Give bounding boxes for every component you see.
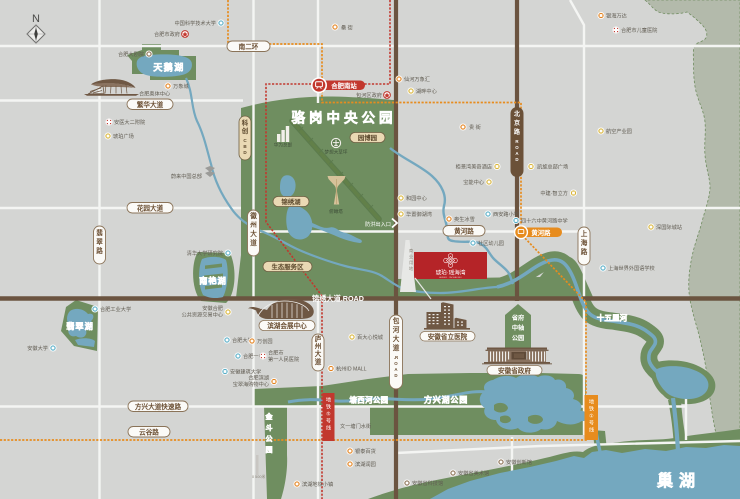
svg-text:地铁⑤号线: 地铁⑤号线 [326,396,331,432]
svg-text:上海世界外国语学校: 上海世界外国语学校 [608,264,655,272]
svg-text:合肥大剧院: 合肥大剧院 [118,50,145,58]
svg-text:合肥工业大学: 合肥工业大学 [100,305,131,313]
svg-text:生态服务区: 生态服务区 [272,262,305,271]
svg-text:方兴大道快速路: 方兴大道快速路 [135,402,182,411]
svg-text:蔚来中国总部: 蔚来中国总部 [171,172,202,180]
svg-text:栢景湾美奇酒店: 栢景湾美奇酒店 [456,163,492,171]
svg-text:AMBER · YAOHAI BAY: AMBER · YAOHAI BAY [439,276,462,279]
svg-text:深国际城站: 深国际城站 [656,223,682,231]
svg-text:滨湖会展中心: 滨湖会展中心 [267,321,307,330]
svg-text:中建·智立方: 中建·智立方 [540,189,568,197]
svg-text:黄河路: 黄河路 [531,228,551,237]
svg-text:包河区政府: 包河区政府 [356,91,382,99]
svg-text:锦绣湖: 锦绣湖 [281,197,301,206]
svg-text:梦想大草坪: 梦想大草坪 [325,149,348,156]
svg-text:清华大学研究院: 清华大学研究院 [187,249,224,257]
svg-text:合肥南站: 合肥南站 [330,81,357,90]
svg-text:繁华大道: 繁华大道 [137,100,164,109]
svg-text:安徽大学: 安徽大学 [27,344,48,352]
svg-text:贵 街: 贵 街 [469,123,481,131]
svg-text:天鹅湖: 天鹅湖 [153,62,184,73]
svg-text:安徽省立医院: 安徽省立医院 [428,332,468,341]
svg-text:合肥市: 合肥市 [268,349,284,357]
svg-text:琥珀·瑶海湾: 琥珀·瑶海湾 [436,269,466,277]
svg-text:银泰百货: 银泰百货 [355,447,376,455]
svg-text:巢湖: 巢湖 [656,471,701,490]
svg-text:地铁①号线: 地铁①号线 [589,398,594,434]
svg-text:凯旋总部广场: 凯旋总部广场 [537,163,568,171]
svg-text:南二环: 南二环 [239,42,259,51]
svg-text:翡翠湖: 翡翠湖 [66,321,94,331]
svg-text:琥珀广场: 琥珀广场 [113,132,134,140]
svg-text:社区幼儿园: 社区幼儿园 [478,239,504,247]
svg-text:奥生冰雪: 奥生冰雪 [454,215,475,223]
svg-text:0 500米: 0 500米 [252,474,266,479]
svg-text:安徽建筑大学: 安徽建筑大学 [230,368,261,376]
svg-text:黄河路: 黄河路 [454,226,474,235]
svg-text:十五里河: 十五里河 [597,313,628,323]
svg-text:方兴湖公园: 方兴湖公园 [424,395,468,405]
svg-text:安徽合肥: 安徽合肥 [202,304,223,312]
svg-text:滨湖润园: 滨湖润园 [355,460,376,468]
svg-text:翡翠路: 翡翠路 [96,228,103,255]
svg-text:公共资源交易中心: 公共资源交易中心 [181,311,223,319]
svg-text:花园大道: 花园大道 [137,203,164,212]
svg-text:防洪出入口: 防洪出入口 [365,220,391,228]
svg-text:合肥市政府: 合肥市政府 [154,30,180,38]
svg-text:安徽省政府: 安徽省政府 [498,366,531,375]
svg-text:安徽创新馆: 安徽创新馆 [506,458,532,466]
svg-text:杭州ID MALL: 杭州ID MALL [336,365,367,373]
svg-text:仙河万象汇: 仙河万象汇 [404,75,430,83]
svg-text:锦绣大道.ROAD: 锦绣大道.ROAD [312,294,364,303]
svg-text:万创园: 万创园 [257,337,273,345]
svg-text:中国科学技术大学: 中国科学技术大学 [174,19,216,27]
svg-text:湖畔中心: 湖畔中心 [416,87,437,95]
svg-text:滨湖地铁小镇: 滨湖地铁小镇 [302,480,333,488]
svg-text:云谷路: 云谷路 [139,427,159,436]
svg-text:宝翠海购物中心: 宝翠海购物中心 [233,380,269,388]
svg-text:省府中轴公园: 省府中轴公园 [511,314,525,342]
svg-text:百大心悦城: 百大心悦城 [357,333,384,341]
svg-text:航空产业园: 航空产业园 [606,127,632,135]
svg-text:N: N [32,13,40,25]
svg-text:合肥奥体中心: 合肥奥体中心 [139,90,170,98]
svg-text:华置御湖湾: 华置御湖湾 [406,210,432,218]
svg-text:骆岗中央公园: 骆岗中央公园 [292,110,397,126]
svg-text:安医大二附院: 安医大二附院 [114,118,146,126]
svg-text:四十六中黄河路中学: 四十六中黄河路中学 [521,217,568,225]
svg-text:南艳湖: 南艳湖 [199,276,227,286]
svg-text:塘西河公园: 塘西河公园 [350,396,389,405]
svg-text:第一人民医院: 第一人民医院 [268,355,300,363]
svg-text:西安路小学: 西安路小学 [493,210,519,218]
svg-text:园博园: 园博园 [358,133,378,142]
svg-text:罍 街: 罍 街 [341,24,353,32]
svg-text:庐州大道: 庐州大道 [314,334,322,366]
svg-text:合肥市儿童医院: 合肥市儿童医院 [621,26,658,34]
svg-text:安徽省美术馆: 安徽省美术馆 [458,469,489,477]
svg-text:和园中心: 和园中心 [406,194,427,202]
svg-text:华为总部: 华为总部 [274,142,293,149]
svg-text:宝能中心: 宝能中心 [463,178,484,186]
svg-text:合肥滨湖: 合肥滨湖 [248,374,269,382]
svg-text:俯瞰塔: 俯瞰塔 [329,208,343,215]
svg-text:上海路: 上海路 [581,229,588,256]
svg-text:安徽省科技馆: 安徽省科技馆 [412,479,443,487]
svg-text:银海万达: 银海万达 [606,12,627,20]
svg-text:文一塘门水街: 文一塘门水街 [340,422,371,430]
svg-text:万象城: 万象城 [173,82,189,90]
